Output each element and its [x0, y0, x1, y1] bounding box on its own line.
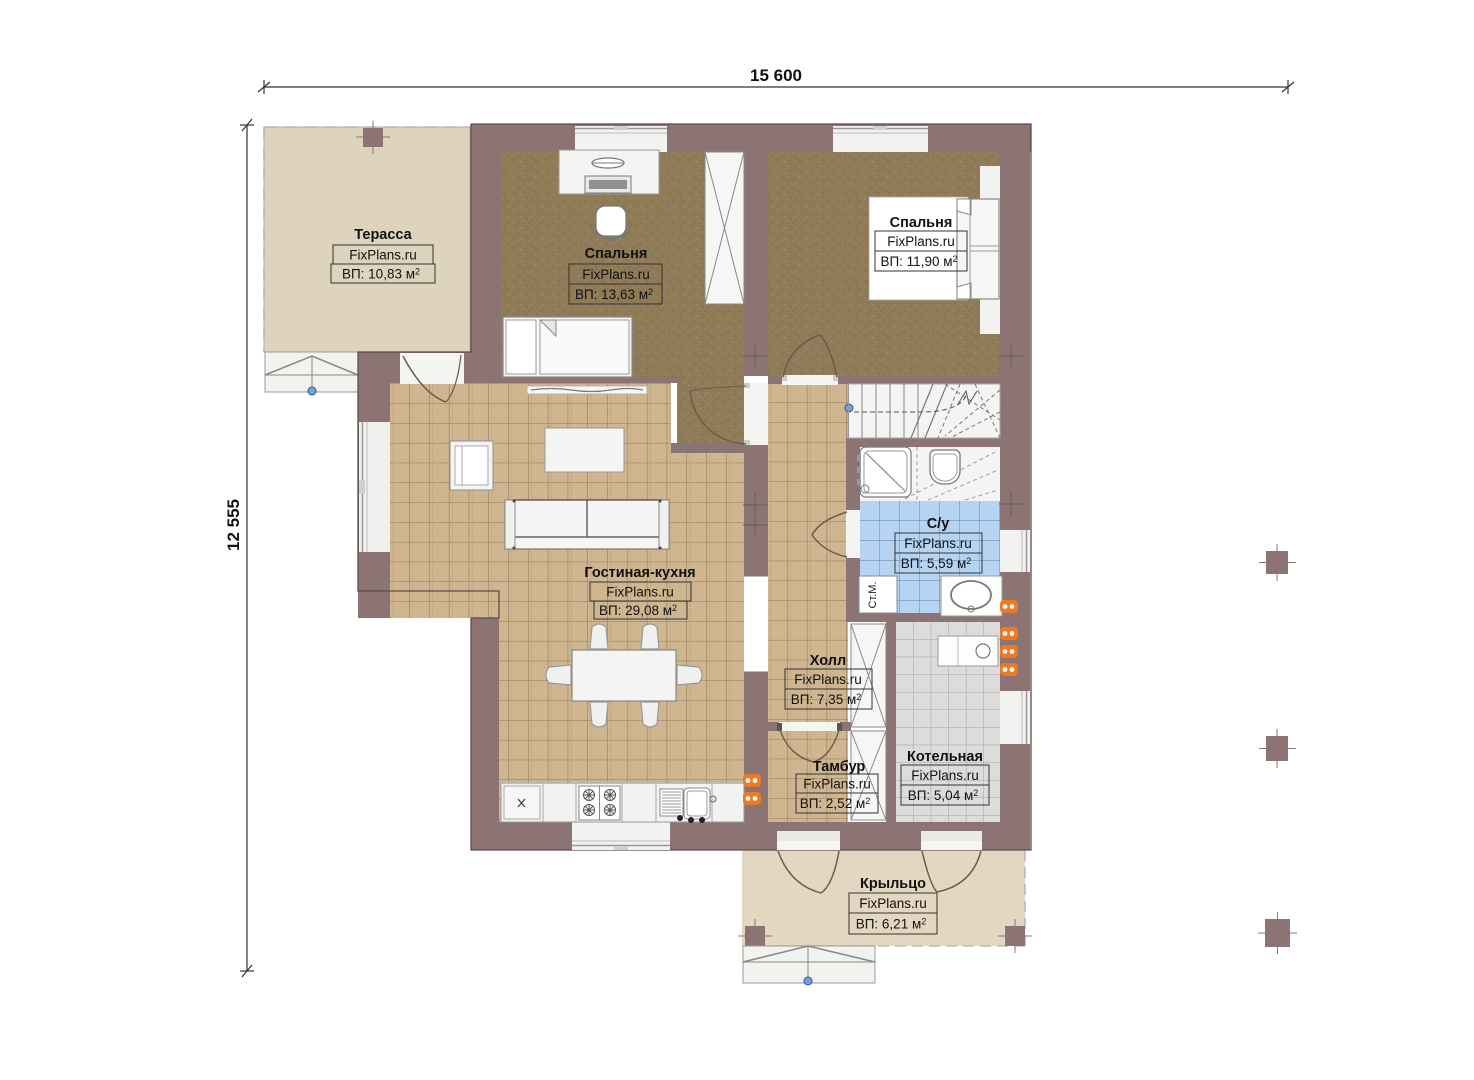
svg-text:Ст.М.: Ст.М.: [867, 581, 879, 608]
svg-text:Гостиная-кухня: Гостиная-кухня: [584, 565, 695, 581]
svg-text:Котельная: Котельная: [907, 749, 983, 765]
svg-text:ВП: 10,83 м2: ВП: 10,83 м2: [342, 267, 420, 282]
svg-text:FixPlans.ru: FixPlans.ru: [606, 585, 674, 600]
svg-text:ВП: 6,21 м2: ВП: 6,21 м2: [856, 917, 927, 932]
svg-text:FixPlans.ru: FixPlans.ru: [803, 777, 871, 792]
svg-text:12 555: 12 555: [224, 499, 243, 551]
svg-text:FixPlans.ru: FixPlans.ru: [794, 672, 862, 687]
svg-text:Холл: Холл: [810, 653, 846, 669]
svg-text:Спальня: Спальня: [585, 246, 648, 262]
svg-text:FixPlans.ru: FixPlans.ru: [859, 896, 927, 911]
svg-text:Терасса: Терасса: [354, 227, 412, 243]
svg-text:FixPlans.ru: FixPlans.ru: [349, 248, 417, 263]
svg-text:FixPlans.ru: FixPlans.ru: [911, 768, 979, 783]
svg-text:15 600: 15 600: [750, 66, 802, 85]
svg-text:ВП: 13,63 м2: ВП: 13,63 м2: [575, 287, 653, 302]
svg-text:FixPlans.ru: FixPlans.ru: [904, 536, 972, 551]
svg-text:ВП: 7,35 м2: ВП: 7,35 м2: [791, 692, 862, 707]
svg-text:С/у: С/у: [927, 516, 950, 532]
svg-text:ВП: 2,52 м2: ВП: 2,52 м2: [800, 796, 871, 811]
svg-text:Крыльцо: Крыльцо: [860, 876, 926, 892]
svg-text:ВП: 5,59 м2: ВП: 5,59 м2: [901, 556, 972, 571]
svg-text:FixPlans.ru: FixPlans.ru: [887, 234, 955, 249]
svg-text:Тамбур: Тамбур: [813, 759, 866, 775]
svg-text:ВП: 11,90 м2: ВП: 11,90 м2: [880, 254, 957, 269]
svg-text:ВП: 5,04 м2: ВП: 5,04 м2: [908, 788, 979, 803]
svg-text:FixPlans.ru: FixPlans.ru: [582, 267, 650, 282]
svg-text:Спальня: Спальня: [890, 215, 953, 231]
svg-text:ВП: 29,08 м2: ВП: 29,08 м2: [599, 603, 677, 618]
